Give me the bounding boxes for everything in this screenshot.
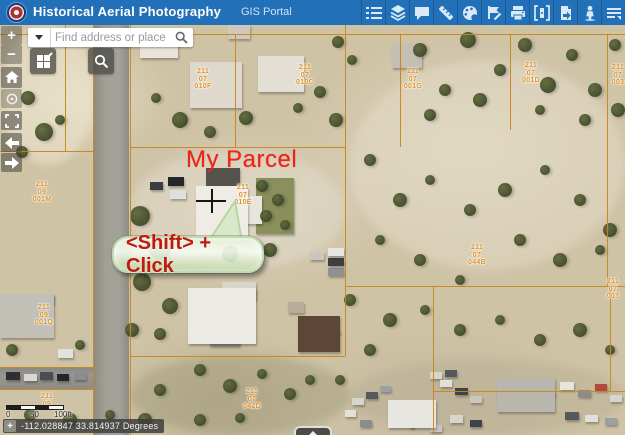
search-source-dropdown[interactable] (28, 28, 51, 47)
map-tree (603, 223, 617, 237)
map-tree (498, 183, 512, 197)
map-building (497, 378, 555, 412)
map-tree (566, 49, 578, 61)
map-tree (609, 39, 621, 51)
map-building (430, 372, 442, 379)
map-tree (439, 84, 451, 96)
extent-icon (5, 114, 19, 128)
parcel-number-label: 21109001Q (35, 304, 53, 327)
map-tree (162, 298, 178, 314)
map-building (57, 374, 69, 381)
search-bar (28, 28, 193, 47)
map-building (345, 410, 356, 417)
next-extent-button[interactable] (1, 153, 22, 172)
map-building (440, 380, 452, 387)
parcel-boundary-line (607, 34, 608, 286)
map-tree (256, 180, 268, 192)
map-tree (393, 193, 407, 207)
map-tree (130, 206, 150, 226)
pencil-icon (45, 52, 53, 60)
print-icon[interactable] (505, 0, 529, 25)
map-building (360, 420, 372, 427)
map-tree (364, 154, 376, 166)
map-tree (553, 253, 567, 267)
map-building (328, 248, 344, 256)
map-building (366, 392, 378, 399)
parcel-boundary-line (345, 286, 625, 287)
map-building (565, 412, 579, 420)
map-tree (154, 328, 166, 340)
map-building (6, 372, 20, 380)
map-tree (540, 165, 550, 175)
locate-icon (5, 92, 19, 106)
arrow-right-icon (5, 157, 19, 169)
map-building (445, 370, 457, 377)
map-building (74, 373, 86, 380)
map-tree (154, 384, 166, 396)
parcel-boundary-line (510, 34, 511, 130)
parcel-boundary-line (345, 25, 346, 356)
parcel-number-label: 21107010F (194, 68, 211, 91)
parcel-number-label: 21107042D (243, 388, 261, 411)
home-icon (5, 71, 19, 84)
map-tree (6, 344, 18, 356)
basemap-gallery-button[interactable] (30, 48, 56, 74)
terrain-patch (350, 60, 625, 270)
edit-icon[interactable] (481, 0, 505, 25)
map-tree (257, 369, 267, 379)
map-tree (535, 105, 545, 115)
map-tree (518, 38, 532, 52)
map-tree (424, 109, 436, 121)
draw-icon[interactable] (457, 0, 481, 25)
map-building (40, 372, 53, 380)
map-tree (172, 112, 188, 128)
map-tree (573, 323, 587, 337)
map-tree (293, 103, 303, 113)
parcel-number-label: 21107044B (468, 244, 486, 267)
streetview-icon[interactable] (577, 0, 601, 25)
map-road (94, 25, 129, 435)
parcel-boundary-line (433, 286, 434, 435)
measure-icon[interactable] (433, 0, 457, 25)
map-tree (35, 123, 53, 141)
map-tree (55, 115, 65, 125)
map-building (388, 400, 436, 428)
map-tree (151, 93, 161, 103)
zoom-in-button[interactable]: + (1, 26, 22, 45)
map-tree (595, 245, 605, 255)
portal-link[interactable]: GIS Portal (241, 6, 292, 18)
map-tree (235, 413, 245, 423)
map-building (288, 302, 304, 313)
map-tree (495, 315, 505, 325)
parcel-boundary-line (0, 367, 93, 368)
map-tree (260, 210, 272, 222)
parcel-boundary-line (0, 389, 93, 390)
map-tree (413, 43, 427, 57)
map-building (170, 190, 186, 199)
map-tree (464, 204, 476, 216)
map-building (595, 384, 607, 391)
parcel-boundary-line (610, 286, 611, 391)
parcel-boundary-line (93, 25, 94, 435)
zoom-out-button[interactable]: − (1, 45, 22, 64)
map-tree (329, 113, 343, 127)
parcel-number-label: 21107001D (522, 62, 540, 85)
map-tree (588, 83, 602, 97)
arrow-left-icon (5, 137, 19, 149)
legend-icon[interactable] (361, 0, 385, 25)
map-tree (383, 313, 397, 327)
map-building (560, 382, 574, 390)
map-tree (239, 111, 253, 125)
more-menu-icon[interactable] (601, 0, 625, 25)
map-building (298, 316, 340, 352)
map-building (328, 258, 344, 266)
map-building (188, 288, 256, 344)
map-tree (420, 305, 430, 315)
map-canvas[interactable]: My Parcel <Shift> + Click (0, 25, 625, 435)
map-tree (494, 64, 506, 76)
map-building (610, 395, 622, 402)
map-tree (574, 194, 586, 206)
parcel-number-label: 21107001G (404, 68, 422, 91)
scalebar-label: 100ft (54, 410, 72, 419)
parcel-boundary-line (235, 34, 236, 147)
coordinate-readout: -112.028847 33.814937 Degrees (21, 421, 158, 431)
map-building (58, 349, 73, 358)
map-tree (332, 36, 344, 48)
map-building (380, 386, 391, 392)
scalebar-label: 0 (6, 410, 10, 419)
map-building (228, 25, 250, 39)
parcel-number-label: 21107003 (607, 278, 620, 301)
coordinate-widget: + -112.028847 33.814937 Degrees (3, 419, 164, 433)
parcel-boundary-line (130, 356, 345, 357)
parcel-number-label: 21107003 (612, 64, 625, 87)
chevron-down-icon (35, 35, 43, 40)
map-tree (75, 340, 85, 350)
chevron-up-icon (309, 431, 317, 435)
map-building (168, 177, 184, 186)
map-tree (534, 334, 546, 346)
full-extent-button[interactable] (1, 111, 22, 130)
parcel-boundary-line (130, 25, 131, 435)
map-tree (305, 375, 315, 385)
map-building (352, 398, 364, 405)
search-input[interactable] (51, 28, 170, 47)
map-tree (125, 323, 139, 337)
shift-click-callout: <Shift> + Click (112, 236, 264, 273)
map-tree (314, 86, 326, 98)
map-tree (280, 220, 290, 230)
locate-button[interactable] (1, 89, 22, 108)
app-header: Historical Aerial Photography GIS Portal (0, 0, 625, 25)
magnifier-icon (94, 54, 109, 69)
scalebar: 0 50 100ft (6, 405, 76, 419)
map-tree (414, 254, 426, 266)
map-tree (579, 114, 591, 126)
map-tree (455, 275, 465, 285)
map-tree (204, 126, 216, 138)
scalebar-label: 50 (30, 410, 39, 419)
map-building (585, 415, 598, 422)
map-tree (223, 379, 237, 393)
callout-text: <Shift> + Click (126, 232, 262, 278)
home-button[interactable] (1, 67, 22, 88)
map-building (470, 396, 482, 403)
header-toolbar (361, 0, 625, 25)
map-tree (425, 175, 435, 185)
map-building (470, 420, 482, 427)
search-icon[interactable] (170, 28, 193, 47)
map-tree (454, 324, 466, 336)
map-tree (611, 103, 625, 117)
search-tool-button[interactable] (88, 48, 114, 74)
map-building (310, 252, 324, 260)
map-tree (21, 91, 35, 105)
map-tree (364, 344, 376, 356)
previous-extent-button[interactable] (1, 133, 22, 152)
parcel-boundary-line (400, 34, 401, 147)
map-tree (375, 235, 385, 245)
map-tree (272, 194, 284, 206)
map-building (605, 418, 617, 425)
comment-icon[interactable] (409, 0, 433, 25)
map-tree (194, 364, 206, 376)
map-building (450, 415, 463, 423)
map-building (24, 374, 37, 381)
map-tree (194, 414, 206, 426)
app-title: Historical Aerial Photography (33, 4, 221, 19)
map-tree (284, 388, 296, 400)
map-tree (263, 243, 277, 257)
layers-icon[interactable] (385, 0, 409, 25)
map-building (328, 268, 344, 276)
map-tree (540, 77, 556, 93)
my-parcel-annotation: My Parcel (186, 146, 297, 174)
map-tree (473, 93, 487, 107)
parcel-boundary-line (433, 391, 625, 392)
attribute-table-tab[interactable] (294, 426, 332, 435)
swipe-icon[interactable] (529, 0, 553, 25)
map-tree (335, 375, 345, 385)
gis-application-window: Historical Aerial Photography GIS Portal (0, 0, 625, 435)
coordinate-pick-icon[interactable]: + (4, 420, 16, 432)
export-icon[interactable] (553, 0, 577, 25)
map-tree (347, 55, 357, 65)
map-tree (514, 234, 526, 246)
parcel-number-label: 21107010C (296, 64, 314, 87)
county-seal-logo-icon (7, 3, 26, 22)
parcel-number-label: 21109001M (33, 181, 52, 204)
map-building (150, 182, 163, 190)
